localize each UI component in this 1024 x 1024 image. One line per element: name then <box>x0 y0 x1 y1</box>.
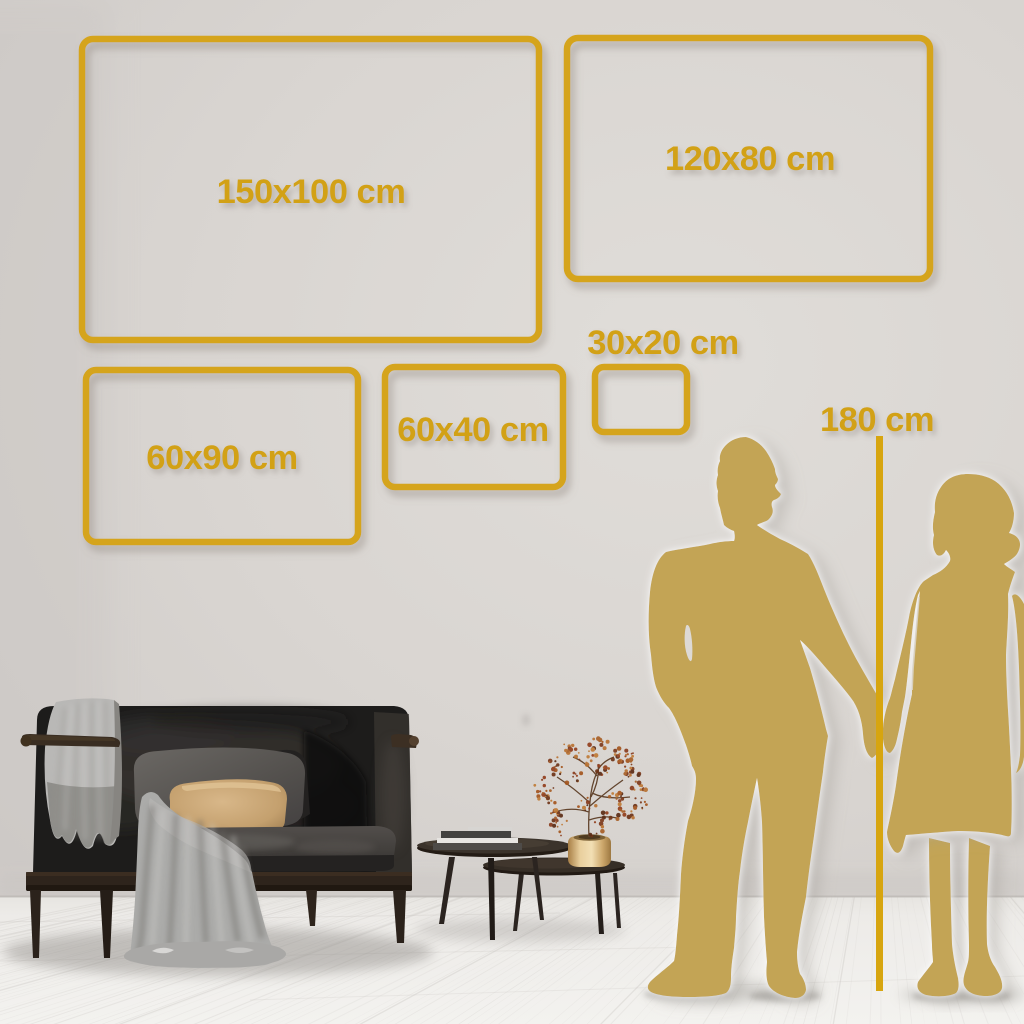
svg-text:150x100 cm: 150x100 cm <box>217 173 406 211</box>
svg-text:60x40 cm: 60x40 cm <box>397 411 548 449</box>
svg-text:180 cm: 180 cm <box>820 401 934 439</box>
svg-text:60x90 cm: 60x90 cm <box>146 439 297 477</box>
svg-text:120x80 cm: 120x80 cm <box>665 140 835 178</box>
svg-text:30x20 cm: 30x20 cm <box>587 324 738 362</box>
